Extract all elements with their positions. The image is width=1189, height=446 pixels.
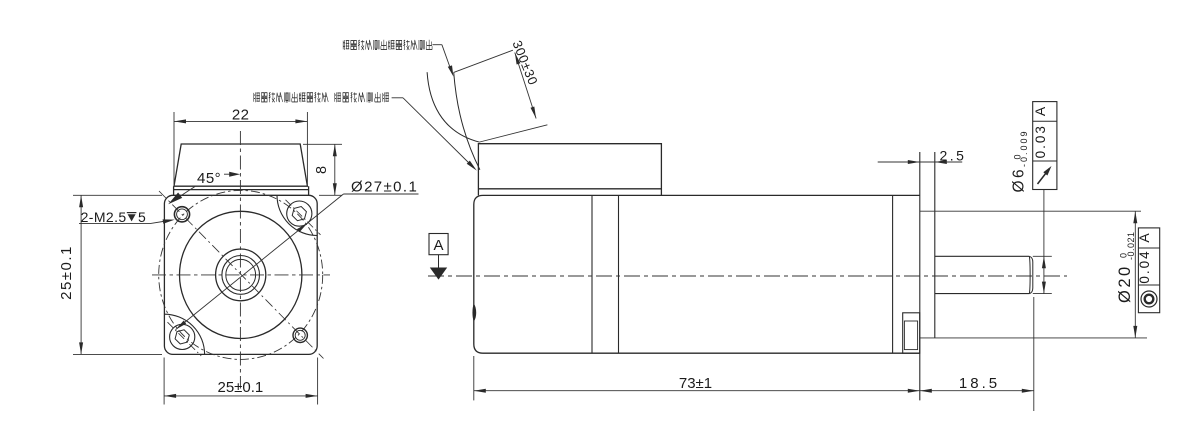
svg-text:5: 5 [138,209,146,225]
svg-text:22: 22 [232,107,250,124]
svg-text:Ø27±0.1: Ø27±0.1 [351,178,418,195]
svg-text:2.5: 2.5 [940,147,967,163]
svg-text:18.5: 18.5 [959,375,1000,392]
svg-text:Ø20: Ø20 [1116,264,1134,303]
svg-text:A: A [1032,106,1048,116]
svg-text:73±1: 73±1 [679,375,712,392]
svg-text:8: 8 [314,166,330,174]
svg-text:-0.009: -0.009 [1019,129,1029,167]
svg-text:Ø6: Ø6 [1011,167,1028,193]
svg-text:0.03: 0.03 [1033,124,1048,158]
svg-text:45°: 45° [197,170,221,187]
svg-text:0.04: 0.04 [1137,249,1152,283]
svg-text:A: A [433,237,443,254]
svg-text:2-M2.5: 2-M2.5 [81,209,127,225]
svg-text:25±0.1: 25±0.1 [58,245,75,300]
svg-text:-0.021: -0.021 [1126,231,1136,260]
svg-text:A: A [1136,233,1152,243]
svg-text:25±0.1: 25±0.1 [218,379,264,396]
